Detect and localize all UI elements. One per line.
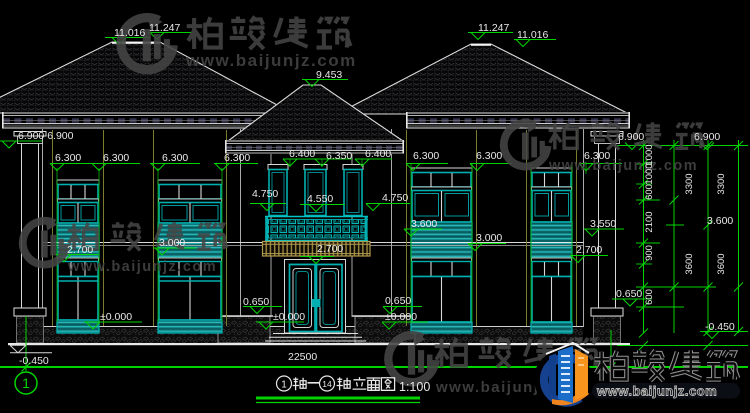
svg-text:3600: 3600	[716, 253, 727, 274]
svg-text:22500: 22500	[288, 351, 317, 363]
svg-text:6.300: 6.300	[224, 152, 250, 164]
svg-text:6.300: 6.300	[162, 152, 188, 164]
svg-text:3300: 3300	[716, 173, 727, 194]
svg-text:1000: 1000	[644, 144, 655, 165]
svg-text:www.baijunjz.com: www.baijunjz.com	[596, 384, 717, 399]
svg-text:3.600: 3.600	[411, 218, 437, 230]
svg-text:3.000: 3.000	[159, 237, 185, 249]
svg-text:3.600: 3.600	[707, 215, 733, 227]
svg-text:3.000: 3.000	[476, 232, 502, 244]
svg-text:1: 1	[22, 375, 30, 391]
svg-text:6.300: 6.300	[103, 152, 129, 164]
svg-text:0.650: 0.650	[616, 288, 642, 300]
svg-text:±0.000: ±0.000	[273, 311, 305, 323]
svg-text:0.650: 0.650	[243, 296, 269, 308]
svg-text:6.900 6.900: 6.900 6.900	[18, 130, 74, 142]
svg-text:3.550: 3.550	[590, 218, 616, 230]
svg-text:11.247: 11.247	[149, 22, 180, 34]
svg-text:1000: 1000	[644, 163, 655, 184]
svg-text:6.900: 6.900	[618, 131, 644, 143]
svg-text:11.016: 11.016	[114, 27, 145, 39]
svg-text:6.400: 6.400	[365, 148, 391, 160]
svg-text:www.baijunjz.com: www.baijunjz.com	[548, 158, 698, 174]
svg-text:-0.450: -0.450	[19, 355, 49, 367]
svg-text:www.baijunjz.com: www.baijunjz.com	[185, 51, 357, 70]
svg-text:6.350: 6.350	[326, 150, 352, 162]
svg-text:±0.000: ±0.000	[385, 311, 417, 323]
svg-text:600: 600	[644, 289, 655, 305]
svg-text:9.453: 9.453	[316, 69, 342, 81]
svg-text:11.016: 11.016	[517, 29, 548, 41]
svg-text:6.400: 6.400	[289, 148, 315, 160]
svg-text:4.550: 4.550	[307, 193, 333, 205]
svg-text:600: 600	[644, 184, 655, 200]
svg-text:6.300: 6.300	[55, 152, 81, 164]
svg-text:2100: 2100	[644, 211, 655, 232]
svg-text:3300: 3300	[684, 173, 695, 194]
svg-text:±0.000: ±0.000	[100, 311, 132, 323]
svg-text:0.650: 0.650	[385, 295, 411, 307]
svg-text:2.700: 2.700	[317, 243, 343, 255]
svg-text:6.900: 6.900	[694, 131, 720, 143]
svg-text:2.700: 2.700	[67, 244, 93, 256]
svg-text:www.baijunjz.com: www.baijunjz.com	[67, 259, 217, 275]
svg-text:900: 900	[644, 245, 655, 261]
svg-text:3600: 3600	[684, 253, 695, 274]
svg-text:4.750: 4.750	[252, 188, 278, 200]
svg-text:11.247: 11.247	[478, 22, 509, 34]
svg-text:14: 14	[322, 379, 332, 389]
svg-text:4.750: 4.750	[382, 192, 408, 204]
svg-text:6.300: 6.300	[413, 150, 439, 162]
svg-text:6.300: 6.300	[584, 150, 610, 162]
svg-text:-0.450: -0.450	[705, 321, 735, 333]
svg-text:6.300: 6.300	[476, 150, 502, 162]
svg-text:2.700: 2.700	[576, 244, 602, 256]
svg-text:1:100: 1:100	[399, 380, 430, 394]
svg-text:1: 1	[281, 380, 287, 391]
